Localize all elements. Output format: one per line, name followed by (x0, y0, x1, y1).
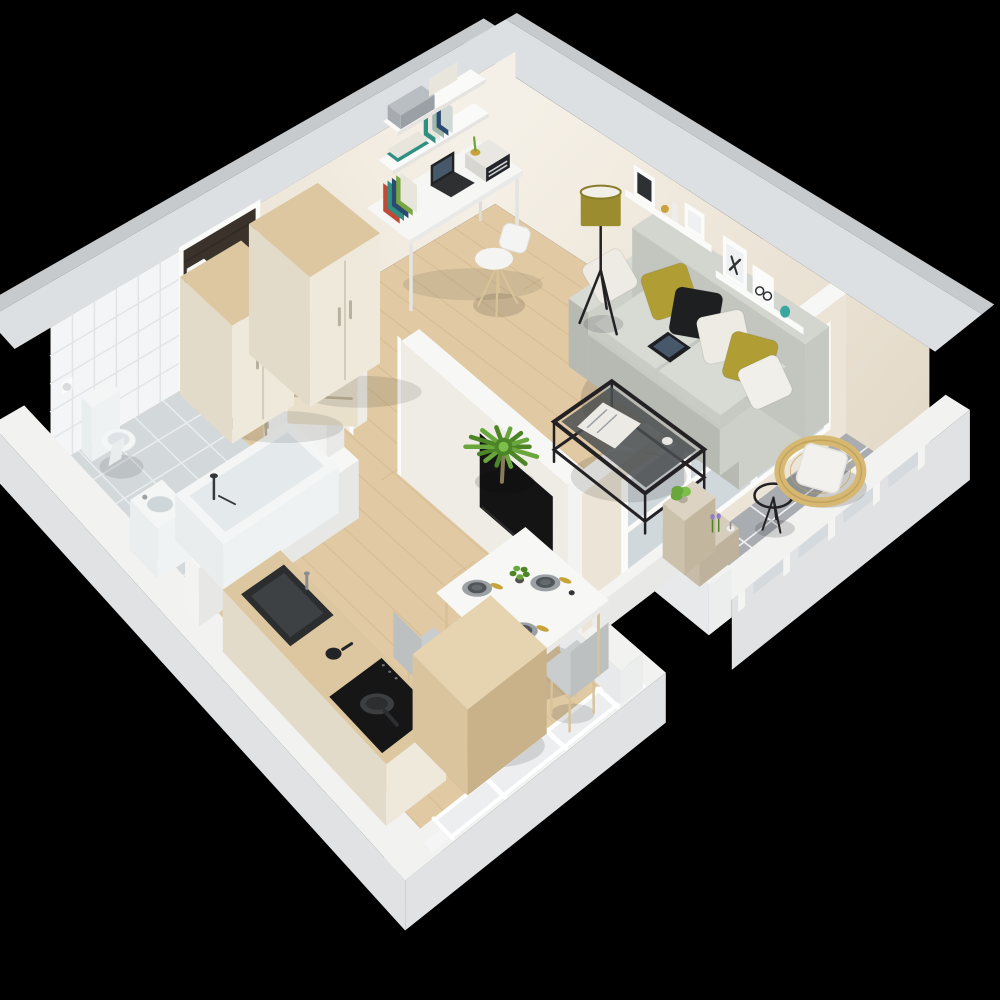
lavender (710, 514, 714, 520)
shadow (100, 455, 144, 479)
shadow (584, 315, 624, 333)
toilet-paper-roll (63, 383, 72, 391)
plate-inner (540, 579, 551, 585)
shadow (475, 470, 535, 494)
basin-faucet-icon (142, 495, 147, 500)
plant (671, 486, 683, 496)
sprig (523, 572, 530, 578)
plate-inner (472, 585, 483, 591)
pepper-mill (569, 590, 575, 595)
floor-plan-render (0, 0, 1000, 1000)
toilet-tank-side (82, 397, 92, 462)
faucet-icon (304, 571, 310, 575)
lavender (717, 513, 721, 519)
line (497, 264, 498, 316)
knob (382, 664, 385, 666)
moka-pot (326, 648, 342, 660)
sprig (521, 567, 528, 573)
shadow (551, 704, 595, 724)
pan-inner (366, 697, 388, 710)
shadow (755, 520, 795, 538)
hall-door-frame (397, 336, 401, 477)
sprig (510, 571, 517, 577)
vase (662, 437, 673, 445)
shadow (403, 268, 543, 300)
sofa-back-front (805, 326, 829, 440)
candle (672, 202, 678, 224)
tub-faucet-icon (210, 473, 218, 478)
basin (147, 496, 173, 512)
lamp-top (581, 186, 621, 199)
line (502, 453, 504, 482)
knob (395, 677, 398, 679)
shadow (473, 293, 525, 317)
sprig (516, 574, 523, 580)
palm-core (499, 442, 509, 452)
sprig (513, 566, 520, 572)
apartment-floor-plan (0, 0, 1000, 1000)
gold-decor (661, 205, 669, 213)
knob (388, 671, 391, 673)
line (474, 137, 475, 150)
chair-seat (475, 248, 513, 270)
teal-decor (780, 306, 790, 318)
